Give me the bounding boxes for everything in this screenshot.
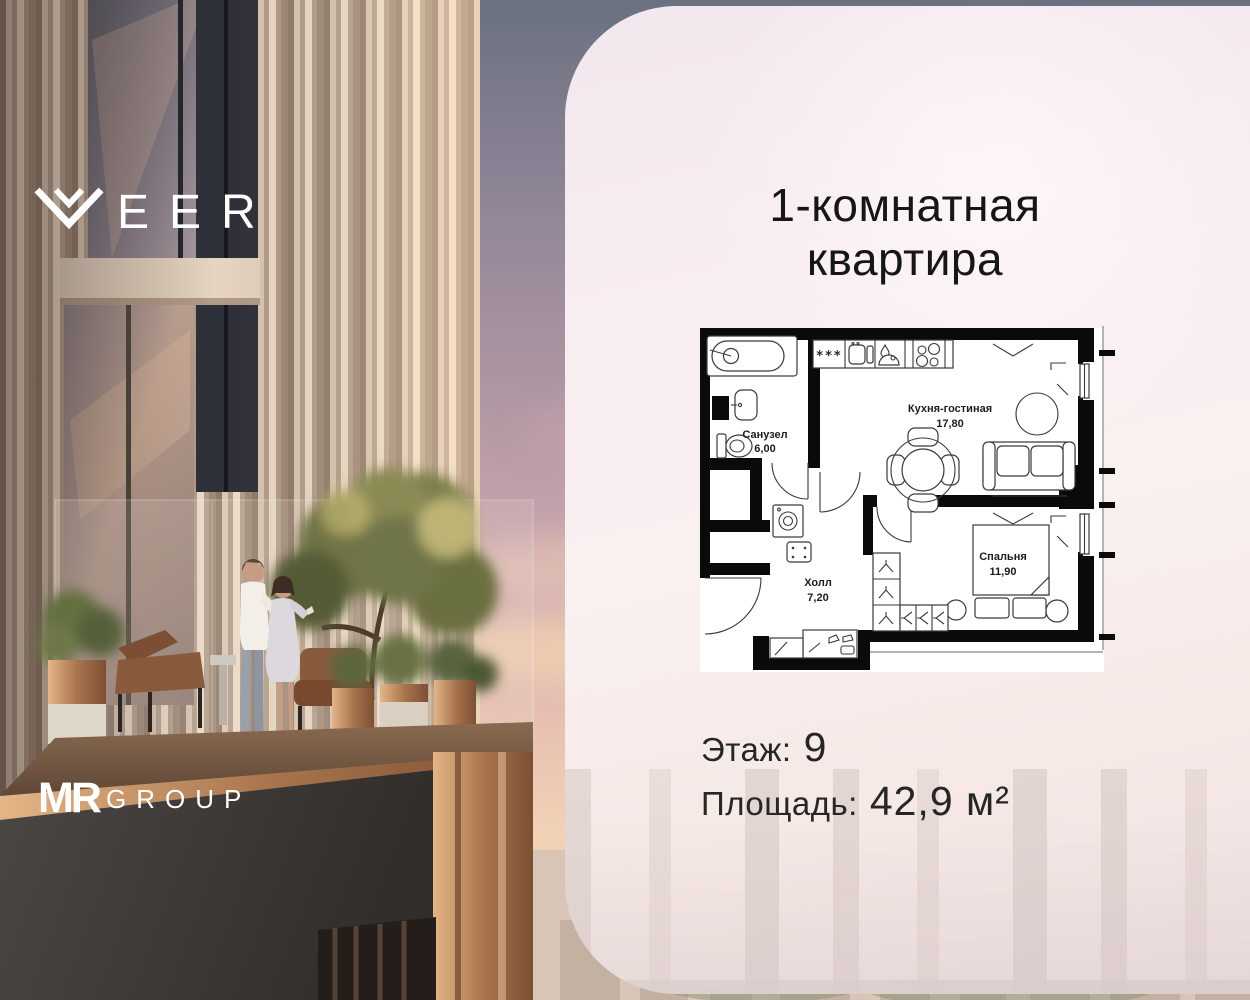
bathtub-icon bbox=[707, 336, 797, 376]
svg-text:Спальня: Спальня bbox=[979, 551, 1027, 563]
svg-text:6,00: 6,00 bbox=[754, 443, 775, 455]
apartment-title-line2: квартира bbox=[673, 232, 1137, 286]
kitchen-sink-icon bbox=[849, 343, 873, 365]
apartment-card: 1-комнатная квартира bbox=[565, 6, 1250, 994]
veer-logo-letters: EER bbox=[117, 186, 276, 239]
curtained-window bbox=[318, 917, 436, 1000]
svg-text:17,80: 17,80 bbox=[936, 418, 964, 430]
apartment-title: 1-комнатная квартира bbox=[673, 178, 1137, 287]
svg-text:7,20: 7,20 bbox=[807, 592, 828, 604]
promo-page: EER MR GROUP 1-комнатная квартира bbox=[0, 0, 1250, 1000]
floor-plan: *** bbox=[695, 320, 1115, 680]
svg-text:Холл: Холл bbox=[804, 577, 832, 589]
svg-text:11,90: 11,90 bbox=[990, 566, 1017, 578]
fridge-icon: *** bbox=[816, 349, 842, 364]
area-row: Площадь:42,9 м² bbox=[701, 778, 1010, 825]
electrical-panel-icon bbox=[787, 542, 811, 562]
svg-text:Кухня-гостиная: Кухня-гостиная bbox=[908, 403, 992, 415]
apartment-title-line1: 1-комнатная bbox=[673, 178, 1137, 232]
area-value: 42,9 м² bbox=[870, 778, 1010, 824]
area-label: Площадь: bbox=[701, 785, 858, 822]
mr-logo-text: MR bbox=[38, 774, 102, 822]
floor-value: 9 bbox=[804, 724, 828, 770]
washbasin-icon bbox=[731, 390, 757, 420]
shaft-block bbox=[712, 396, 729, 420]
floor-row: Этаж:9 bbox=[701, 724, 827, 771]
washing-machine-icon bbox=[773, 505, 803, 537]
group-logo-text: GROUP bbox=[106, 784, 251, 814]
svg-text:Санузел: Санузел bbox=[742, 429, 787, 441]
sofa-icon bbox=[983, 442, 1075, 496]
kitchen-counter: *** bbox=[813, 340, 953, 368]
floor-label: Этаж: bbox=[701, 731, 792, 768]
